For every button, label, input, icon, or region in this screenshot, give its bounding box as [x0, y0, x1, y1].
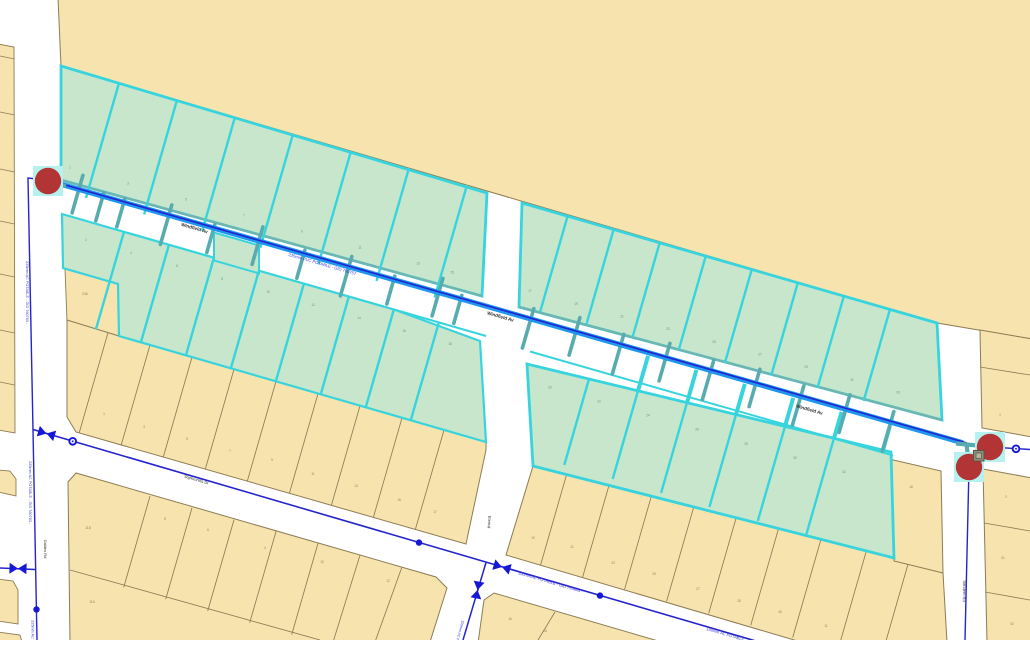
svg-text:16: 16: [402, 329, 406, 333]
svg-text:3: 3: [127, 181, 129, 185]
svg-text:31: 31: [850, 378, 854, 382]
svg-text:33: 33: [896, 390, 900, 394]
svg-text:29: 29: [804, 365, 808, 369]
svg-text:45: 45: [778, 610, 782, 614]
svg-text:28: 28: [744, 442, 748, 446]
svg-text:52: 52: [1010, 622, 1014, 626]
svg-text:6: 6: [207, 528, 209, 532]
svg-text:2: 2: [1005, 495, 1007, 499]
svg-text:24: 24: [646, 414, 650, 418]
svg-text:25: 25: [652, 572, 656, 576]
svg-text:15: 15: [450, 271, 454, 275]
svg-text:30: 30: [793, 456, 797, 460]
svg-text:27: 27: [758, 352, 762, 356]
svg-text:246: 246: [82, 292, 88, 296]
svg-text:1: 1: [999, 413, 1001, 417]
svg-text:23: 23: [666, 327, 670, 331]
svg-text:15: 15: [397, 498, 401, 502]
svg-text:12: 12: [386, 579, 390, 583]
svg-text:225mm AC POTABLE - GID 760753: 225mm AC POTABLE - GID 760753 -: [28, 461, 32, 525]
svg-text:16: 16: [909, 485, 913, 489]
svg-text:1: 1: [103, 412, 105, 416]
svg-text:51: 51: [1001, 556, 1005, 560]
svg-text:225mm AC POTABLE - GID 760753: 225mm AC POTABLE - GID 760753 -: [25, 261, 29, 325]
svg-text:9: 9: [271, 458, 273, 462]
svg-text:26: 26: [695, 428, 699, 432]
svg-text:27: 27: [696, 587, 700, 591]
svg-text:225mm AC POTABLE - GID 760753: 225mm AC POTABLE - GID 760753 -: [31, 620, 35, 640]
svg-text:6: 6: [176, 264, 178, 268]
svg-text:9: 9: [301, 229, 303, 233]
svg-text:20: 20: [548, 386, 552, 390]
svg-text:1: 1: [69, 166, 71, 170]
svg-text:13: 13: [416, 261, 420, 265]
svg-text:4: 4: [264, 546, 266, 550]
svg-text:118: 118: [85, 526, 91, 530]
svg-text:25: 25: [712, 340, 716, 344]
svg-text:5: 5: [186, 437, 188, 441]
svg-text:Galileo Rd: Galileo Rd: [43, 540, 48, 559]
svg-text:21: 21: [570, 545, 574, 549]
svg-text:22: 22: [597, 400, 601, 404]
svg-text:Eternal: Eternal: [487, 516, 493, 529]
svg-text:17: 17: [528, 289, 532, 293]
svg-text:3: 3: [143, 425, 145, 429]
svg-text:11: 11: [311, 472, 315, 476]
svg-text:12: 12: [311, 303, 315, 307]
svg-text:18: 18: [448, 342, 452, 346]
svg-text:19: 19: [531, 536, 535, 540]
svg-text:28: 28: [737, 599, 741, 603]
svg-text:8: 8: [221, 277, 223, 281]
svg-text:8: 8: [164, 517, 166, 521]
svg-text:7: 7: [243, 213, 245, 217]
svg-text:5: 5: [185, 197, 187, 201]
svg-text:17: 17: [433, 510, 437, 514]
svg-text:2: 2: [85, 238, 87, 242]
svg-text:13: 13: [354, 484, 358, 488]
svg-text:32: 32: [842, 470, 846, 474]
svg-text:10: 10: [266, 290, 270, 294]
svg-text:4: 4: [130, 251, 132, 255]
svg-text:116: 116: [89, 600, 95, 604]
svg-text:14: 14: [357, 316, 361, 320]
svg-text:21: 21: [620, 315, 624, 319]
svg-text:11: 11: [824, 624, 828, 628]
svg-text:Sandern Rd: Sandern Rd: [962, 580, 967, 601]
svg-text:7: 7: [229, 449, 231, 453]
svg-text:16: 16: [508, 617, 512, 621]
svg-text:19: 19: [574, 302, 578, 306]
svg-text:11: 11: [358, 245, 362, 249]
svg-text:23: 23: [611, 561, 615, 565]
svg-text:10: 10: [320, 560, 324, 564]
